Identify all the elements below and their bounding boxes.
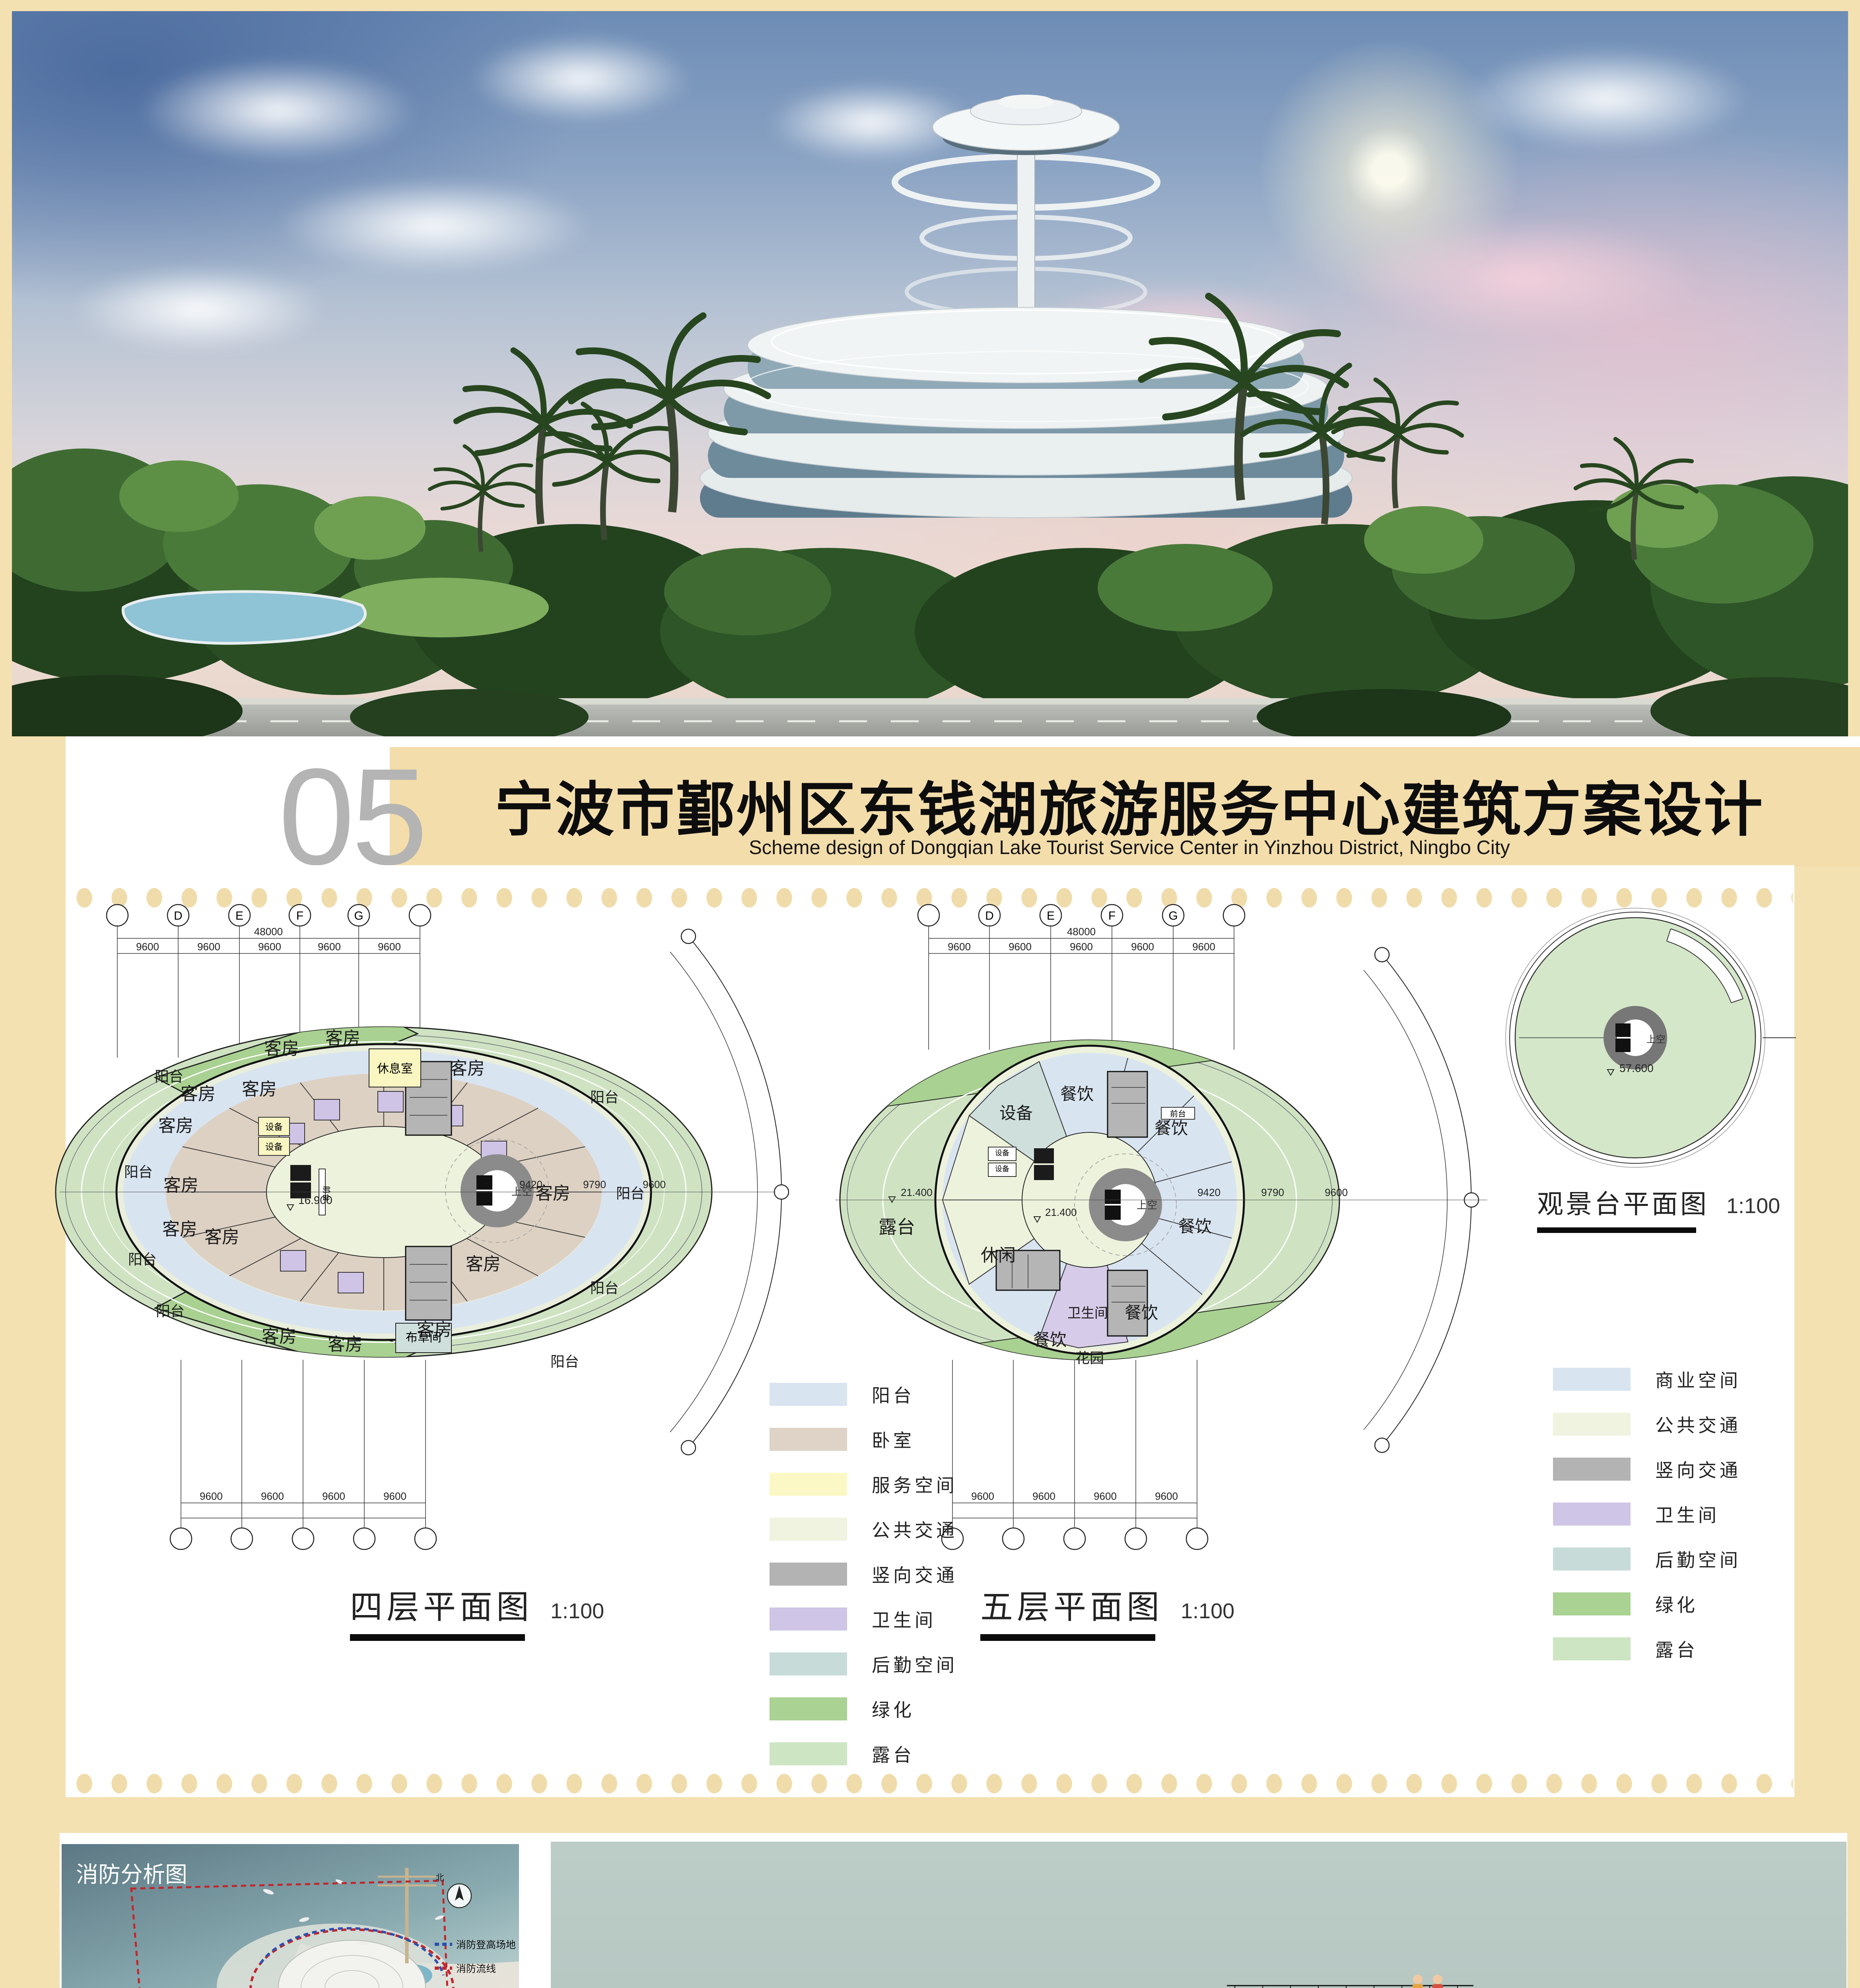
section-building	[670, 1986, 1748, 1988]
svg-text:F: F	[1108, 909, 1116, 922]
legend-swatch	[1553, 1637, 1631, 1660]
legend-row: 公共交通	[1553, 1402, 1741, 1446]
legend-swatch	[770, 1428, 847, 1451]
legend-label: 公共交通	[1655, 1411, 1741, 1437]
project-title-en: Scheme design of Dongqian Lake Tourist S…	[422, 837, 1837, 859]
legend-swatch	[770, 1697, 847, 1720]
deck-caption-text: 观景台平面图	[1537, 1183, 1709, 1221]
svg-text:9600: 9600	[643, 1178, 666, 1190]
floor5-caption-text: 五层平面图	[980, 1580, 1163, 1628]
legend-label: 露台	[872, 1741, 915, 1767]
svg-text:9600: 9600	[322, 1490, 345, 1502]
svg-text:9600: 9600	[200, 1490, 223, 1502]
presentation-board: 05 宁波市鄞州区东钱湖旅游服务中心建筑方案设计 Scheme design o…	[0, 0, 1860, 1988]
svg-text:阳台: 阳台	[550, 1353, 579, 1370]
legend-swatch	[1553, 1368, 1631, 1391]
svg-text:阳台: 阳台	[616, 1185, 645, 1202]
svg-text:9790: 9790	[583, 1178, 606, 1190]
legend-label: 服务空间	[872, 1471, 958, 1497]
legend-row: 服务空间	[770, 1462, 958, 1507]
svg-text:餐饮: 餐饮	[1033, 1330, 1067, 1349]
legend-swatch	[770, 1383, 847, 1406]
legend-label: 后勤空间	[1655, 1546, 1741, 1572]
legend-row: 竖向交通	[1553, 1446, 1741, 1491]
svg-text:客房: 客房	[262, 1327, 297, 1346]
legend-row: 卫生间	[770, 1596, 958, 1641]
legend-label: 卧室	[872, 1426, 915, 1452]
svg-text:9600: 9600	[1325, 1186, 1348, 1198]
floor5-leisure-label: 休闲	[981, 1246, 1016, 1265]
floor4-grid-bottom: 9600 9600 9600 9600	[170, 1360, 436, 1549]
legend-label: 卫生间	[872, 1606, 936, 1632]
floor4-legend: 阳台 卧室 服务空间 公共交通 竖向交通 卫生间 后勤空间 绿化 露台	[770, 1372, 958, 1776]
hero-building-and-trees-drawing	[12, 11, 1848, 736]
legend-label: 绿化	[1655, 1591, 1698, 1617]
section-drawing-panel: 62.600 57.600 30000 12400 ±0.000 62.600 …	[551, 1842, 1846, 1988]
legend-row: 竖向交通	[770, 1551, 958, 1596]
floor5-equip-label: 设备	[999, 1104, 1033, 1122]
svg-text:客房: 客房	[325, 1029, 360, 1048]
svg-text:客房: 客房	[328, 1335, 363, 1354]
caption-underline	[980, 1634, 1155, 1641]
floor4-caption-scale: 1:100	[550, 1599, 604, 1623]
deck-plan-drawing: 上空 57.600	[1495, 895, 1798, 1181]
legend-row: 卫生间	[1553, 1491, 1741, 1536]
legend-swatch	[770, 1652, 847, 1675]
legend-label: 竖向交通	[1655, 1456, 1741, 1482]
svg-text:餐饮: 餐饮	[1125, 1303, 1158, 1322]
svg-text:E: E	[1047, 909, 1055, 922]
legend-swatch	[770, 1742, 847, 1765]
legend-label: 竖向交通	[872, 1561, 958, 1587]
floor4-desk-label: 前台	[322, 1186, 331, 1202]
project-title-cn: 宁波市鄞州区东钱湖旅游服务中心建筑方案设计	[422, 762, 1837, 847]
svg-text:9600: 9600	[1094, 1490, 1117, 1502]
svg-text:客房: 客房	[242, 1079, 277, 1099]
svg-text:客房: 客房	[163, 1176, 198, 1195]
deck-void-label: 上空	[1646, 1034, 1666, 1045]
svg-text:餐饮: 餐饮	[1060, 1085, 1094, 1103]
svg-text:48000: 48000	[254, 926, 283, 938]
svg-text:9600: 9600	[136, 941, 159, 953]
svg-text:F: F	[296, 909, 303, 922]
svg-text:9420: 9420	[1197, 1186, 1221, 1198]
legend-row: 后勤空间	[770, 1641, 958, 1686]
svg-text:D: D	[985, 909, 994, 922]
svg-text:消防流线: 消防流线	[456, 1963, 496, 1974]
floor4-linen-label: 布草间	[406, 1331, 441, 1344]
svg-text:9600: 9600	[261, 1490, 284, 1502]
svg-text:客房: 客房	[181, 1084, 216, 1104]
floor5-garden-label: 花园	[1075, 1350, 1104, 1366]
svg-text:餐饮: 餐饮	[1154, 1119, 1188, 1138]
svg-text:客房: 客房	[535, 1184, 570, 1203]
legend-swatch	[770, 1563, 847, 1586]
svg-text:客房: 客房	[466, 1254, 501, 1274]
floor5-legend: 商业空间 公共交通 竖向交通 卫生间 后勤空间 绿化 露台	[1553, 1357, 1741, 1671]
svg-text:阳台: 阳台	[128, 1251, 157, 1268]
lawn	[334, 578, 549, 637]
svg-text:9600: 9600	[197, 941, 220, 953]
floor5-elevation: 21.400	[1045, 1206, 1077, 1218]
floor4-void-label: 上空	[511, 1186, 532, 1198]
legend-row: 露台	[770, 1731, 958, 1776]
legend-swatch	[770, 1607, 847, 1631]
floor5-terrace-elevation: 21.400	[901, 1186, 933, 1198]
floor5-wc-label: 卫生间	[1067, 1306, 1108, 1321]
floor5-equip-small: 设备	[995, 1165, 1009, 1173]
floor4-plan-drawing: D E F G 48000 9600 9600 9600 9600 9600	[36, 891, 791, 1567]
floor4-caption-text: 四层平面图	[350, 1580, 533, 1628]
legend-label: 露台	[1655, 1636, 1698, 1662]
svg-text:9600: 9600	[318, 941, 341, 953]
legend-label: 绿化	[872, 1696, 915, 1722]
floor4-equip-label: 设备	[265, 1142, 283, 1152]
svg-text:9790: 9790	[1261, 1186, 1284, 1198]
legend-label: 公共交通	[872, 1516, 958, 1542]
hero-rendering	[12, 11, 1848, 736]
legend-label: 商业空间	[1655, 1366, 1741, 1392]
legend-label: 卫生间	[1655, 1501, 1720, 1527]
legend-row: 公共交通	[770, 1507, 958, 1551]
floor4-restroom-label: 休息室	[377, 1062, 413, 1076]
svg-text:9600: 9600	[1131, 941, 1154, 953]
curb	[12, 698, 1848, 705]
svg-text:48000: 48000	[1067, 926, 1096, 938]
legend-row: 后勤空间	[1553, 1536, 1741, 1581]
svg-text:阳台: 阳台	[156, 1303, 185, 1319]
floor5-terrace-label: 露台	[878, 1217, 915, 1237]
svg-text:9600: 9600	[1009, 941, 1032, 953]
svg-text:E: E	[235, 909, 243, 922]
fire-analysis-diagram: 消防分析图 北 消防登高场地 消防流线	[62, 1844, 519, 1988]
podium-building	[700, 307, 1352, 518]
svg-text:客房: 客房	[158, 1116, 193, 1136]
svg-text:客房: 客房	[204, 1227, 239, 1247]
legend-row: 露台	[1553, 1626, 1741, 1671]
legend-label: 阳台	[872, 1381, 915, 1408]
caption-underline	[350, 1634, 525, 1641]
svg-text:9600: 9600	[1070, 941, 1093, 953]
floor5-caption: 五层平面图 1:100	[980, 1580, 1234, 1641]
svg-text:9600: 9600	[378, 941, 401, 953]
section-drawing: 62.600 57.600 30000 12400 ±0.000 62.600 …	[551, 1842, 1846, 1988]
svg-text:9600: 9600	[1032, 1490, 1055, 1502]
svg-text:9600: 9600	[1155, 1490, 1178, 1502]
deck-caption-scale: 1:100	[1726, 1194, 1780, 1218]
legend-swatch	[1553, 1592, 1631, 1615]
svg-text:阳台: 阳台	[155, 1068, 183, 1085]
svg-text:客房: 客房	[162, 1219, 197, 1239]
legend-swatch	[1553, 1458, 1631, 1481]
legend-swatch	[1553, 1547, 1631, 1571]
svg-text:G: G	[354, 909, 363, 922]
svg-text:阳台: 阳台	[590, 1280, 619, 1296]
north-label: 北	[435, 1873, 444, 1883]
deck-elevation: 57.600	[1619, 1062, 1654, 1074]
floor5-desk-label: 前台	[1170, 1109, 1186, 1118]
floor4-equip-label: 设备	[265, 1122, 283, 1132]
svg-text:9600: 9600	[971, 1490, 994, 1502]
legend-label: 后勤空间	[872, 1651, 958, 1677]
legend-swatch	[1553, 1503, 1631, 1526]
svg-text:9600: 9600	[948, 941, 971, 953]
dotted-divider-bottom	[67, 1773, 1793, 1794]
floor5-void-label: 上空	[1137, 1199, 1157, 1211]
svg-text:客房: 客房	[450, 1059, 485, 1078]
caption-underline	[1537, 1227, 1696, 1233]
deck-caption: 观景台平面图 1:100	[1537, 1183, 1780, 1233]
svg-text:9600: 9600	[383, 1490, 406, 1502]
legend-row: 绿化	[1553, 1581, 1741, 1626]
legend-row: 阳台	[770, 1372, 958, 1417]
svg-text:9600: 9600	[1192, 941, 1215, 953]
svg-text:阳台: 阳台	[124, 1164, 153, 1180]
legend-swatch	[770, 1518, 847, 1541]
svg-text:D: D	[174, 909, 183, 922]
legend-row: 绿化	[770, 1686, 958, 1731]
svg-text:9600: 9600	[258, 941, 281, 953]
floor5-grid-top: D E F G 48000 9600 9600 9600 9600 9600	[918, 905, 1245, 1050]
diagram-title: 消防分析图	[76, 1862, 187, 1887]
legend-swatch	[1553, 1413, 1631, 1436]
legend-row: 商业空间	[1553, 1357, 1741, 1402]
svg-text:阳台: 阳台	[590, 1089, 619, 1105]
svg-text:餐饮: 餐饮	[1178, 1217, 1212, 1236]
floor4-caption: 四层平面图 1:100	[350, 1580, 604, 1641]
floor5-caption-scale: 1:100	[1181, 1599, 1234, 1623]
legend-row: 卧室	[770, 1417, 958, 1462]
legend-swatch	[770, 1473, 847, 1496]
svg-text:消防登高场地: 消防登高场地	[456, 1939, 516, 1951]
pond	[123, 592, 365, 643]
svg-text:客房: 客房	[264, 1039, 299, 1058]
floor5-grid-bottom: 9600 9600 9600 9600	[942, 1360, 1208, 1549]
svg-text:G: G	[1168, 909, 1178, 922]
floor5-equip-small: 设备	[995, 1149, 1009, 1157]
